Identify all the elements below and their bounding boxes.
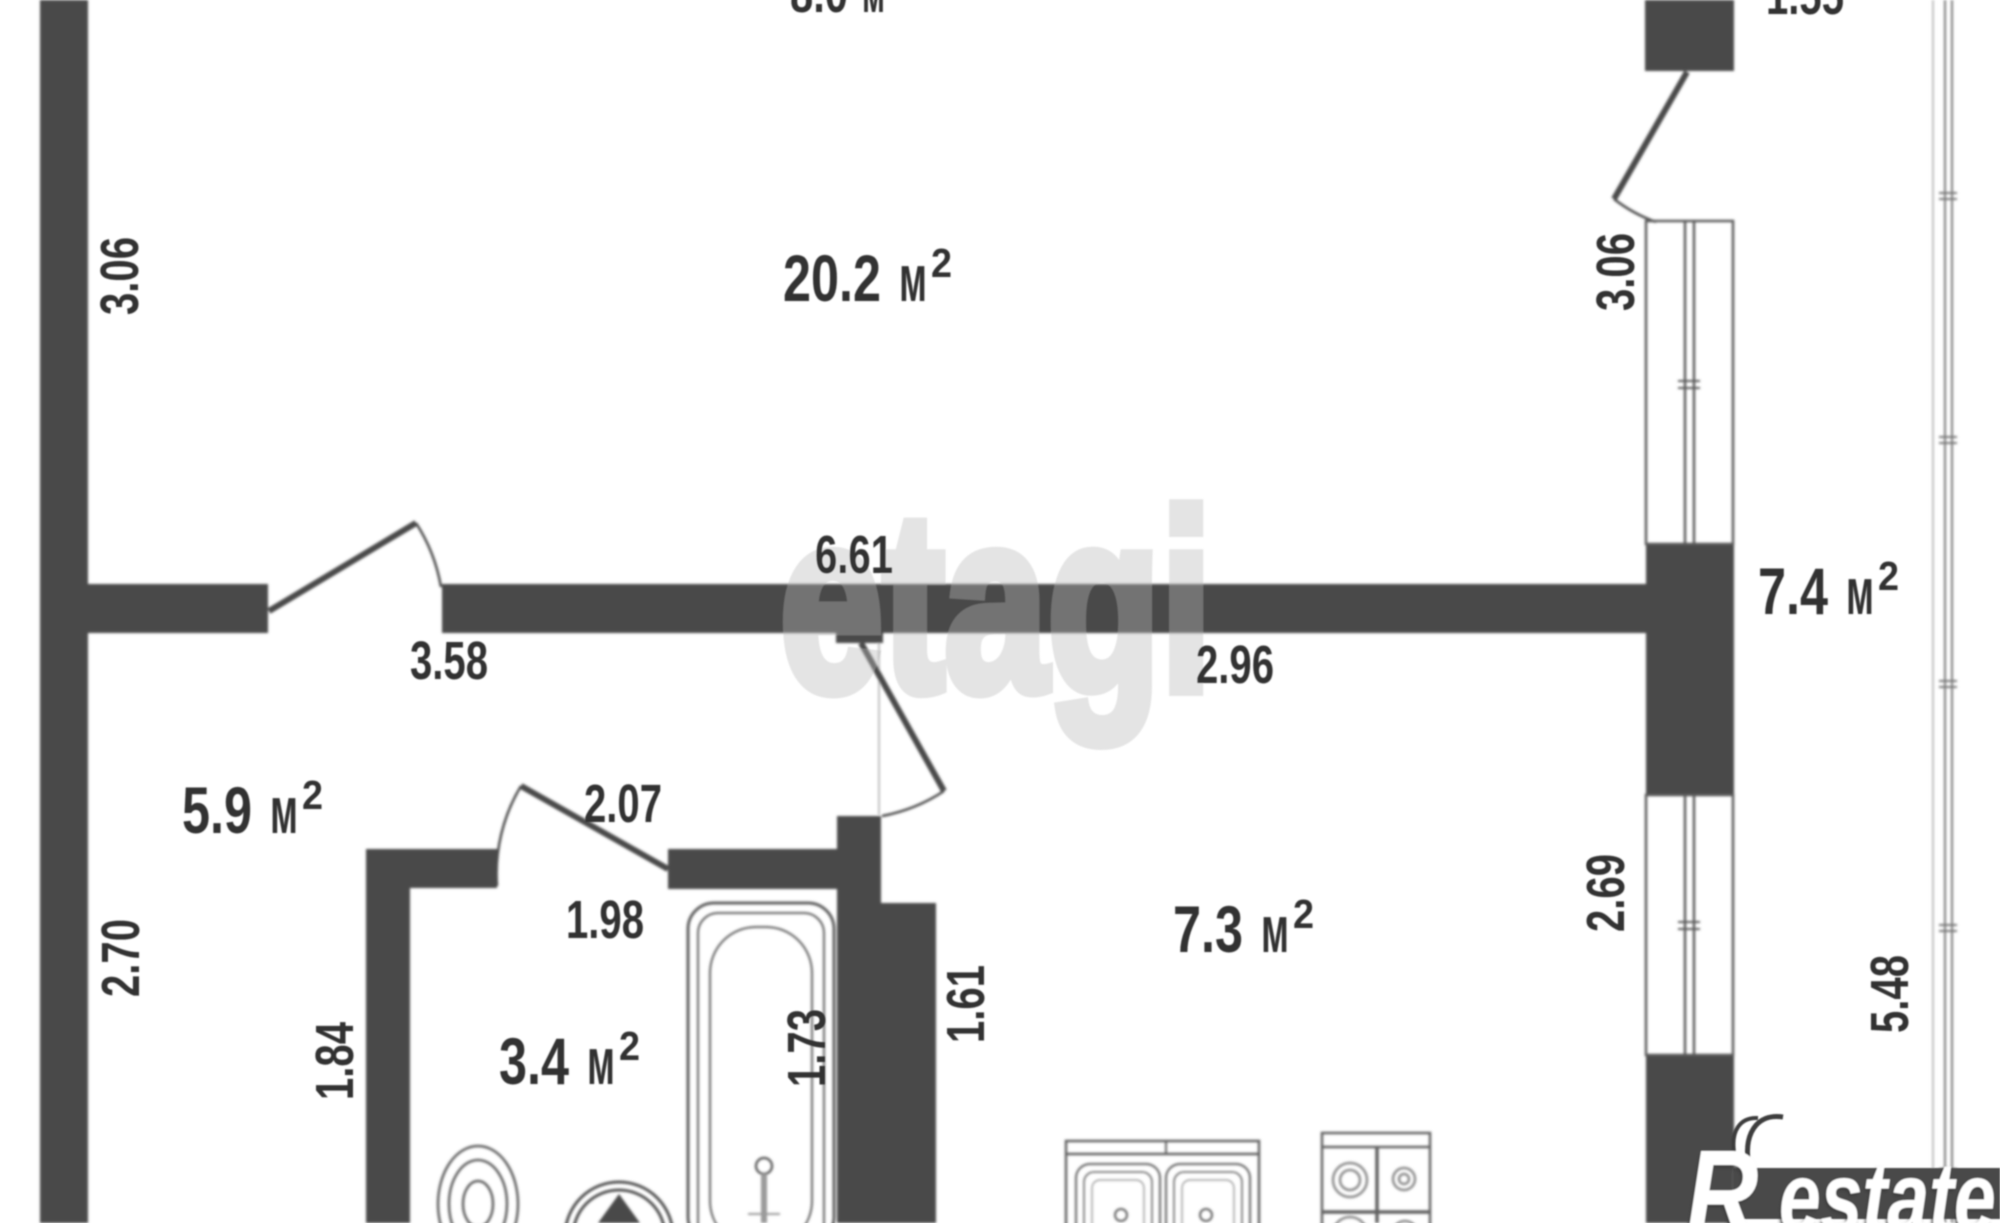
svg-text:м: м	[862, 0, 885, 24]
svg-text:2.96: 2.96	[1196, 635, 1274, 695]
svg-text:3.4: 3.4	[499, 1024, 569, 1098]
svg-text:etagi: etagi	[780, 460, 1212, 745]
svg-text:м: м	[1846, 554, 1874, 628]
svg-text:5.48: 5.48	[1860, 955, 1920, 1033]
svg-text:2: 2	[1878, 553, 1899, 599]
svg-text:м: м	[587, 1024, 615, 1098]
svg-text:estate: estate	[1779, 1141, 1996, 1223]
svg-text:2.07: 2.07	[584, 774, 662, 834]
svg-text:1.73: 1.73	[777, 1009, 837, 1087]
svg-text:1.84: 1.84	[305, 1022, 365, 1100]
svg-text:м: м	[899, 241, 927, 315]
svg-text:R: R	[1686, 1124, 1758, 1223]
svg-text:1.61: 1.61	[936, 965, 996, 1043]
svg-text:1.55: 1.55	[1766, 0, 1844, 26]
svg-text:1.98: 1.98	[566, 890, 644, 950]
svg-text:2: 2	[1293, 891, 1314, 937]
svg-text:8.0: 8.0	[790, 0, 848, 24]
svg-text:м: м	[270, 773, 298, 847]
svg-text:6.61: 6.61	[815, 525, 893, 585]
svg-text:2.70: 2.70	[91, 919, 151, 997]
svg-text:7.4: 7.4	[1758, 554, 1828, 628]
svg-text:2: 2	[302, 772, 323, 818]
svg-text:2: 2	[931, 240, 952, 286]
svg-text:3.06: 3.06	[1586, 233, 1646, 311]
svg-text:2.69: 2.69	[1576, 854, 1636, 932]
svg-text:20.2: 20.2	[783, 241, 881, 315]
svg-text:7.3: 7.3	[1173, 892, 1243, 966]
svg-text:2: 2	[619, 1023, 640, 1069]
svg-text:3.58: 3.58	[410, 631, 488, 691]
svg-text:м: м	[1261, 892, 1289, 966]
svg-text:3.06: 3.06	[90, 237, 150, 315]
svg-text:5.9: 5.9	[182, 773, 252, 847]
